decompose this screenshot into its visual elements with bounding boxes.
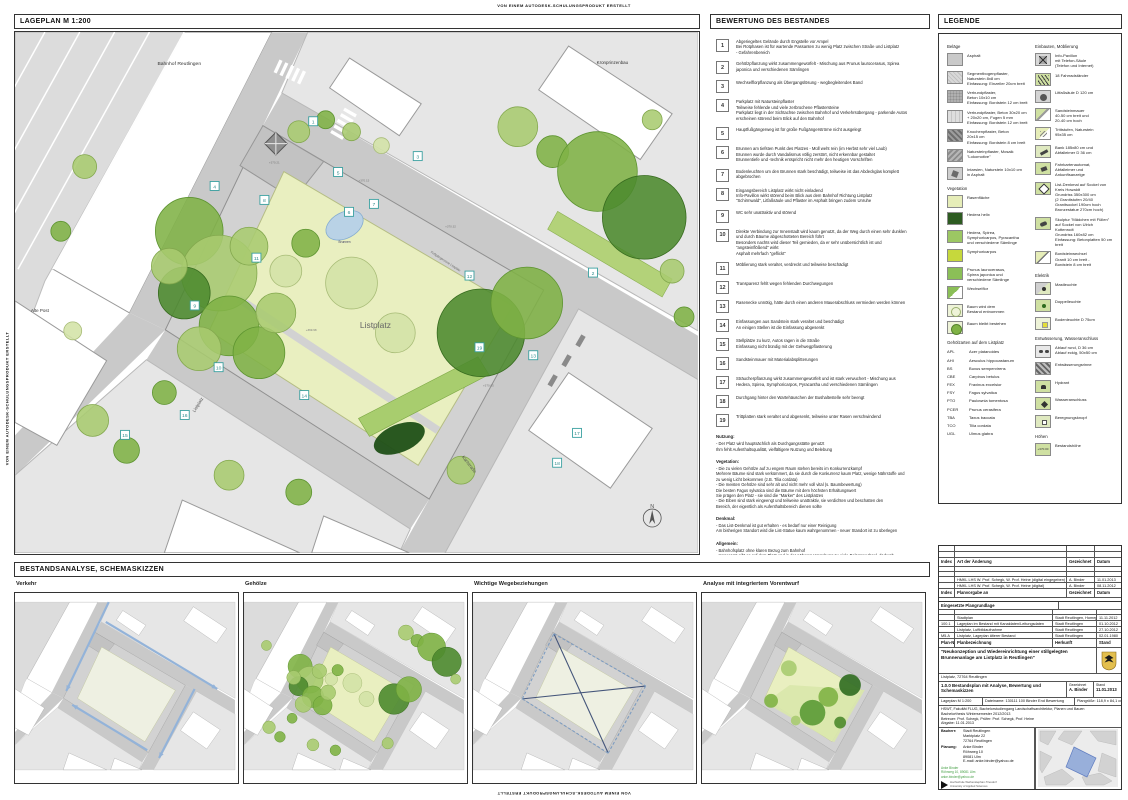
legend-entry: +370.00Bestandshöhe xyxy=(1035,443,1119,456)
titleblock-cell: 02.01.1980 xyxy=(1097,633,1121,638)
bewertung-item-number: 18 xyxy=(716,395,729,408)
legend-entry: Verbundpflaster, Beton 10x10 cm Einfassu… xyxy=(947,90,1031,105)
legend-swatch-beregnung xyxy=(1035,415,1051,428)
bewertung-item: 7Bodenleuchten um den Brunnen stark besc… xyxy=(716,169,930,182)
titleblock-cell: 27.10.2012 xyxy=(1097,627,1121,632)
legend-swatch-verbund1 xyxy=(947,90,963,103)
planvorgabe-header: IndexPlanvorgabe anGezeichnetDatum xyxy=(939,589,1121,598)
bewertung-item: 17Sträucherpflanzung wirkt zusammengewür… xyxy=(716,376,930,389)
schematic-label-wege: Wichtige Wegebeziehungen xyxy=(474,581,548,587)
tree xyxy=(642,110,662,130)
autodesk-banner-bottom: VON EINEM AUTODESK-SCHULUNGSPRODUKT ERST… xyxy=(0,791,1128,796)
legend-swatch-sympho xyxy=(947,249,963,262)
bewertung-section-line: Am bisherigen Standort wird die List-Sta… xyxy=(716,528,930,533)
titleblock-cell: Datum xyxy=(1095,589,1121,597)
schematic-label-gehoelze: Gehölze xyxy=(245,581,267,587)
legend-column-right: Einbauten, MöblierungInfo-Pavillon mit T… xyxy=(1035,38,1119,460)
titleblock-cell xyxy=(939,567,955,571)
legend-entry: Bank 185x80 cm und Abfalleimer D 36 cm xyxy=(1035,145,1119,158)
elevation-label: +370.05 xyxy=(483,384,494,388)
bewertung-item-text: Stellplätze zu kurz, Autos ragen in die … xyxy=(736,338,928,351)
legend-species-row: FSYFagus sylvatica xyxy=(947,390,1031,395)
legend-entry-label: Verbundpflaster, Beton 30x20 cm + 20x20 … xyxy=(967,110,1028,125)
tree xyxy=(64,322,82,340)
titleblock-cell xyxy=(939,583,955,588)
tree xyxy=(233,327,285,379)
legend-swatch-fahrrad xyxy=(1035,73,1051,86)
legend-entry: 18 Fahrradständer xyxy=(1035,73,1119,86)
project-title: "Neukonzeption und Wiedereinrichtung ein… xyxy=(939,648,1097,673)
legend-entry: Segmentbogenpflaster, Naturstein 8x8 cm … xyxy=(947,71,1031,86)
titleblock-cell xyxy=(1059,602,1121,609)
planner-block: Planung:Anke Binder Röhrweg 10 89081 Ulm… xyxy=(941,745,1032,764)
grundlage-footer: Plan-Nr.PlanbezeichnungHerkunftStand xyxy=(939,639,1121,648)
coat-of-arms xyxy=(1097,648,1121,673)
plan-sheet: VON EINEM AUTODESK-SCHULUNGSPRODUKT ERST… xyxy=(0,0,1128,800)
svg-text:4: 4 xyxy=(213,184,216,190)
bewertung-item: 10Direkte Verbindung zur Innenstadt wird… xyxy=(716,229,930,256)
legend-entry-label: 18 Fahrradständer xyxy=(1055,73,1088,78)
legend-entry-label: Sandsteinmauer 40-50 cm breit und 20-40 … xyxy=(1055,108,1089,123)
titleblock-cell: 01.10.2012 xyxy=(1097,621,1121,626)
bewertung-item-text: Brunnen am tiefsten Punkt des Platzes - … xyxy=(736,146,928,162)
legend-entry-label: Wechselflor xyxy=(967,286,988,291)
assessment-title: BEWERTUNG DES BESTANDES xyxy=(710,14,930,29)
bewertung-item-number: 13 xyxy=(716,300,729,313)
legend-swatch-ablauf xyxy=(1035,345,1051,358)
autodesk-banner-top: VON EINEM AUTODESK-SCHULUNGSPRODUKT ERST… xyxy=(0,3,1128,8)
project-location: Listplatz, 72764 Reutlingen xyxy=(939,674,1121,682)
titleblock-cell: Stadt Reutlingen xyxy=(1053,621,1097,626)
legend-entry-label: Rasenfläche xyxy=(967,195,990,200)
legend-swatch-hoehe: +370.00 xyxy=(1035,443,1051,456)
titleblock-cell xyxy=(1095,567,1121,571)
tree xyxy=(287,671,301,685)
species-name: Fraxinus excelsior xyxy=(969,382,1002,387)
tree xyxy=(214,460,244,490)
legend-swatch-prunus xyxy=(947,267,963,280)
university-logo: Hochschule Weihenstephan-Triesdorf Unive… xyxy=(941,781,1032,789)
client-value: Stadt Reutlingen Marktplatz 22 72764 Reu… xyxy=(963,729,992,743)
legend-species-row: CBECarpinus betulus xyxy=(947,374,1031,379)
legend-entry: Intarsien, Naturstein 10x10 cm in Asphal… xyxy=(947,167,1031,180)
tree xyxy=(451,674,461,684)
titleblock-cell xyxy=(939,615,955,620)
location-map xyxy=(1035,728,1121,790)
tree xyxy=(287,713,297,723)
legend-column-left: BelägeAsphaltSegmentbogenpflaster, Natur… xyxy=(947,38,1031,439)
legend-swatch-wechselflor xyxy=(947,286,963,299)
legend-entry: Wasseranschluss xyxy=(1035,397,1119,410)
legend-swatch-verbund2 xyxy=(947,110,963,123)
reutlingen-crest-icon xyxy=(1100,651,1118,671)
legend-entry-label: Natursteinpflaster, Mosaik "Lokomotive" xyxy=(967,149,1014,159)
legend-entry: Entwässerungsrinne xyxy=(1035,362,1119,375)
titleblock-cell: Datum xyxy=(1095,558,1121,566)
legend-entry: Rasenfläche xyxy=(947,195,1031,208)
legend-swatch-mosaik xyxy=(947,149,963,162)
svg-text:12: 12 xyxy=(467,274,473,280)
tree xyxy=(396,677,421,702)
legend-swatch-denkmal xyxy=(1035,182,1051,195)
bewertung-item-text: Rasenecke unnötig, hätte durch einen and… xyxy=(736,300,928,313)
legend-entry-label: Doppelleuchte xyxy=(1055,299,1081,304)
tree xyxy=(152,381,176,405)
plan-number-and-name: 1.0.0 Bestandsplan mit Analyse, Bewertun… xyxy=(939,682,1067,697)
tree xyxy=(256,293,296,333)
species-code: AHI xyxy=(947,358,969,363)
titleblock-cell: A. Binder xyxy=(1067,583,1095,588)
signature: Anke Binder Röhrweg 10, 89081 Ulm anke.b… xyxy=(941,766,1032,778)
bewertung-item: 14Einfassungen aus Sandstein stark veral… xyxy=(716,319,930,332)
bewertung-item-number: 10 xyxy=(716,229,729,242)
legend-species-row: FEXFraxinus excelsior xyxy=(947,382,1031,387)
svg-text:16: 16 xyxy=(182,413,188,419)
species-code: FSY xyxy=(947,390,969,395)
elevation-label: +369.98 xyxy=(306,328,317,332)
legend-species-row: APLAcer platanoides xyxy=(947,349,1031,354)
legend-entry-label: Segmentbogenpflaster, Naturstein 8x8 cm … xyxy=(967,71,1025,86)
species-name: Prunus cerasifera xyxy=(969,407,1001,412)
legend-entry-label: Verbundpflaster, Beton 10x10 cm Einfassu… xyxy=(967,90,1028,105)
bewertung-item-text: Eingangsbereich Listplatz wirkt nicht ei… xyxy=(736,188,928,204)
siteplan-title: LAGEPLAN M 1:200 xyxy=(14,14,700,29)
titleblock-cell xyxy=(1067,567,1095,571)
bewertung-item-number: 7 xyxy=(716,169,729,182)
schematic-svg-wege xyxy=(473,593,696,783)
legend-entry: Prunus laurocerasus, Spirea japonica und… xyxy=(947,267,1031,282)
legend-entry-label: Hedera helix xyxy=(967,212,990,217)
logo-text: Hochschule Weihenstephan-Triesdorf Unive… xyxy=(950,781,997,788)
legend-entry-label: Fahrkartenautomat, Abfalleimer und Ankun… xyxy=(1055,162,1090,177)
tree xyxy=(51,221,71,241)
university-text: HSWT, Fakultät FLUG, Bachelorstudiengang… xyxy=(939,706,1121,727)
tree xyxy=(326,257,378,309)
legend-entry-label: Mastleuchte xyxy=(1055,282,1077,287)
bewertung-item-text: Hauptfußgängerweg ist für große Fußgänge… xyxy=(736,127,928,140)
bewertung-section-line: Bereich, der eigentlich als Aufenthaltsb… xyxy=(716,504,930,509)
legend-entry: Fahrkartenautomat, Abfalleimer und Ankun… xyxy=(1035,162,1119,177)
legend-entry-label: Wasseranschluss xyxy=(1055,397,1087,402)
tree xyxy=(73,155,97,179)
drawn-cell: GezeichnetA. Binder xyxy=(1067,682,1094,697)
titleblock-cell: Listplatz, 72764 Reutlingen xyxy=(939,674,1121,681)
legend-entry: Wechselflor xyxy=(947,286,1031,299)
schematic-panel-analyse xyxy=(701,592,926,784)
svg-text:9: 9 xyxy=(193,304,196,310)
legend-species-row: BSBuxus sempervirens xyxy=(947,366,1031,371)
legend-entry-label: Intarsien, Naturstein 10x10 cm in Asphal… xyxy=(967,167,1022,177)
legend-entry: Trittstufen, Naturstein 95x35 cm xyxy=(1035,127,1119,140)
legend-entry-label: List-Denkmal auf Sockel von Kreis Howald… xyxy=(1055,182,1106,212)
logo-flag-icon xyxy=(941,781,948,789)
bewertung-item-text: Sträucherpflanzung wirkt zusammengewürfe… xyxy=(736,376,928,389)
legend-entry: Baum bleibt bestehen xyxy=(947,321,1031,334)
bewertung-item: 2Gehölzpflanzung wirkt zusammengewürfelt… xyxy=(716,61,930,74)
legend-swatch-wasser xyxy=(1035,397,1051,410)
legend-entry-label: Bordsteinwechsel Granit 10 cm breit - Bo… xyxy=(1055,251,1091,266)
elevation-label: +370.15 xyxy=(358,178,369,182)
tree xyxy=(343,673,362,692)
legend-entry: Knochenpflaster, Beton 20x15 cm Einfassu… xyxy=(947,129,1031,144)
svg-text:10: 10 xyxy=(216,365,222,371)
legend-swatch-boden xyxy=(1035,317,1051,330)
legend-entry: Verbundpflaster, Beton 30x20 cm + 20x20 … xyxy=(947,110,1031,125)
svg-text:6: 6 xyxy=(348,210,351,216)
legend-entry: Bordsteinwechsel Granit 10 cm breit - Bo… xyxy=(1035,251,1119,266)
assessment-marker: 9 xyxy=(190,301,199,310)
legend-swatch-treeout xyxy=(947,304,963,317)
tree xyxy=(834,717,846,729)
titleblock-cell: Herkunft xyxy=(1053,639,1097,647)
legend-swatch-segment xyxy=(947,71,963,84)
bewertung-item-text: WC sehr unattraktiv und störend xyxy=(736,210,928,223)
legend-swatch-skulptur xyxy=(1035,217,1051,230)
legend-entry: Hedera helix xyxy=(947,212,1031,225)
bewertung-item-text: Einfassungen aus Sandstein stark veralte… xyxy=(736,319,928,332)
titleblock-cell: 08.11.2012 xyxy=(1095,583,1121,588)
titleblock-cell: Index xyxy=(939,558,955,566)
species-name: Taxus baccata xyxy=(969,415,995,420)
bewertung-item-number: 4 xyxy=(716,99,729,112)
tree xyxy=(818,687,838,707)
assessment-marker: 2 xyxy=(588,268,597,277)
titleblock-cell: 11.11.2012 xyxy=(1097,615,1121,620)
legend-entry: Asphalt xyxy=(947,53,1031,66)
tree xyxy=(330,745,341,756)
cell-value: 11.01.2013 xyxy=(1096,687,1119,692)
legend-entry-label: Asphalt xyxy=(967,53,981,58)
bewertung-item-number: 8 xyxy=(716,188,729,201)
legend-group-heading: Vegetation xyxy=(947,186,1031,191)
legend-entry-label: Trittstufen, Naturstein 95x35 cm xyxy=(1055,127,1094,137)
legend-swatch-bordstein xyxy=(1035,251,1051,264)
assessment-marker: 6 xyxy=(345,207,354,216)
legend-entry: Bodenleuchte D 75cm xyxy=(1035,317,1119,330)
legend-title: LEGENDE xyxy=(938,14,1122,29)
titleblock-cell: Planbezeichnung xyxy=(955,639,1053,647)
bewertung-item: 3Wechselflorpflanzung als Übergangslösun… xyxy=(716,80,930,93)
contact-block: Bauherr:Stadt Reutlingen Marktplatz 22 7… xyxy=(939,728,1035,790)
legend-swatch-mauer xyxy=(1035,108,1051,121)
legend-entry-label: Baum bleibt bestehen xyxy=(967,321,1006,326)
bewertung-item-text: Wechselflorpflanzung als Übergangslösung… xyxy=(736,80,928,93)
titleblock-cell xyxy=(1067,552,1095,557)
svg-text:15: 15 xyxy=(122,433,128,439)
titleblock-cell: Lageplan im Bestand mit Kanaldaten/Leitu… xyxy=(955,621,1053,626)
assessment-marker: 12 xyxy=(465,271,474,280)
titleblock-cell: Dateiname: 130111 100 Binder End Bewertu… xyxy=(983,698,1075,705)
legend-entry: Hedera, Spirea, Symphoricarpos, Pyracant… xyxy=(947,230,1031,245)
assessment-marker: 4 xyxy=(210,181,219,190)
titleblock-cell xyxy=(1067,572,1095,576)
legend-swatch-asphalt xyxy=(947,53,963,66)
client-label: Bauherr: xyxy=(941,729,963,743)
titleblock-cell xyxy=(955,567,1067,571)
assessment-marker: 10 xyxy=(214,363,223,372)
legend-entry-label: Ablauf rund, D 36 cm Ablauf eckig, 50x50… xyxy=(1055,345,1097,355)
legend-group-heading: Beläge xyxy=(947,44,1031,49)
bewertung-item-number: 9 xyxy=(716,210,729,223)
legend-group-heading: Höhen xyxy=(1035,434,1119,439)
tree xyxy=(263,721,276,734)
bewertung-item: 11Möblierung stark veraltet, verdreckt u… xyxy=(716,262,930,275)
titleblock-cell xyxy=(955,546,1067,551)
titleblock-cell: Plangröße: 118,9 x 84,1 cm xyxy=(1075,698,1121,705)
bewertung-section-heading: Vegetation: xyxy=(716,459,930,464)
plan-label-brunnen: Brunnen xyxy=(339,240,351,244)
bewertung-item: 4Parkplatz mit Natursteinpflaster Teilwe… xyxy=(716,99,930,121)
bewertung-item: 15Stellplätze zu kurz, Autos ragen in di… xyxy=(716,338,930,351)
tree xyxy=(359,691,374,706)
bewertung-item-number: 3 xyxy=(716,80,729,93)
legend-entry: Ablauf rund, D 36 cm Ablauf eckig, 50x50… xyxy=(1035,345,1119,358)
bewertung-item: 9WC sehr unattraktiv und störend xyxy=(716,210,930,223)
legend-group-heading: Elektrik xyxy=(1035,273,1119,278)
legend-entry-label: Bodenleuchte D 75cm xyxy=(1055,317,1095,322)
legend-entry-label: Entwässerungsrinne xyxy=(1055,362,1092,367)
titleblock-cell: Stadt Reutlingen xyxy=(1053,627,1097,632)
assessment-marker: 7 xyxy=(369,199,378,208)
tree xyxy=(674,307,694,327)
titleblock-cell xyxy=(1053,610,1097,614)
university-row: HSWT, Fakultät FLUG, Bachelorstudiengang… xyxy=(939,706,1121,728)
titleblock-cell: A. Binder xyxy=(1067,577,1095,582)
legend-entry-label: Hedera, Spirea, Symphoricarpos, Pyracant… xyxy=(967,230,1019,245)
legend-entry: List-Denkmal auf Sockel von Kreis Howald… xyxy=(1035,182,1119,212)
titleblock-cell xyxy=(955,572,1067,576)
titleblock-cell xyxy=(1095,572,1121,576)
bewertung-item-number: 11 xyxy=(716,262,729,275)
bewertung-item-number: 6 xyxy=(716,146,729,159)
legend-entry: Symphoricarpos xyxy=(947,249,1031,262)
bewertung-item: 8Eingangsbereich Listplatz wirkt nicht e… xyxy=(716,188,930,204)
tree xyxy=(292,229,320,257)
svg-text:17: 17 xyxy=(574,431,580,437)
bewertung-item: 1Abgeriegeltes Gelände durch Engstelle v… xyxy=(716,39,930,55)
client-block: Bauherr:Stadt Reutlingen Marktplatz 22 7… xyxy=(941,729,1032,743)
titleblock-cell: Stadt Reutlingen xyxy=(1053,633,1097,638)
legend-entry: Mastleuchte xyxy=(1035,282,1119,295)
tree xyxy=(343,123,361,141)
assessment-marker: 5 xyxy=(334,168,343,177)
titleblock-cell: 11.01.2013 xyxy=(1095,577,1121,582)
tree xyxy=(602,176,686,260)
legend-species-row: PCERPrunus cerasifera xyxy=(947,407,1031,412)
bewertung-item-number: 2 xyxy=(716,61,729,74)
tree xyxy=(295,696,311,712)
titleblock-cell: HMKL LHS W. Prof. Schegk, W. Prof. Heine… xyxy=(955,577,1067,582)
assessment-marker: 18 xyxy=(553,458,562,467)
tree xyxy=(114,437,140,463)
legend-swatch-intarsien xyxy=(947,167,963,180)
legend-entry-label: Baum wird dem Bestand entnommen xyxy=(967,304,1004,314)
plan-label-alte_post: Alte Post xyxy=(31,308,50,313)
bewertung-item-text: Bodenleuchten um den Brunnen stark besch… xyxy=(736,169,928,182)
titleblock-cell: Stand xyxy=(1097,639,1121,647)
schematic-svg-analyse xyxy=(702,593,925,783)
contact-row: Bauherr:Stadt Reutlingen Marktplatz 22 7… xyxy=(939,728,1121,790)
assessment-marker: 11 xyxy=(252,253,261,262)
svg-text:18: 18 xyxy=(554,461,560,467)
bewertung-item-text: Möblierung stark veraltet, verdreckt und… xyxy=(736,262,928,275)
titleblock-cell xyxy=(1097,610,1121,614)
titleblock-cell xyxy=(1095,546,1121,551)
legend-swatch-tritt xyxy=(1035,127,1051,140)
bewertung-item-number: 1 xyxy=(716,39,729,52)
legend-species-row: AHIAesculus hippocastanum xyxy=(947,358,1031,363)
bewertung-item: 13Rasenecke unnötig, hätte durch einen a… xyxy=(716,300,930,313)
legend-entry-label: Beregnungsknopf xyxy=(1055,415,1087,420)
tree xyxy=(151,248,187,284)
siteplan-drawing: 12345678910111213141516171819+370.15+370… xyxy=(14,31,700,555)
bewertung-item: 16Sandsteinmauer mit Materialabsplitteru… xyxy=(716,357,930,370)
tree xyxy=(317,111,335,129)
svg-text:5: 5 xyxy=(337,170,340,176)
bewertung-item-text: Gehölzpflanzung wirkt zusammengewürfelt … xyxy=(736,61,928,74)
svg-text:7: 7 xyxy=(373,202,376,208)
bewertung-section-heading: Allgemein: xyxy=(716,541,930,546)
bewertung-item: 12Transparenz fehlt wegen fehlenden Durc… xyxy=(716,281,930,294)
tree xyxy=(307,739,319,751)
titleblock-cell: Stadtplan xyxy=(955,615,1053,620)
legend-swatch-mast xyxy=(1035,282,1051,295)
bewertung-item-number: 17 xyxy=(716,376,729,389)
species-name: Tilia cordata xyxy=(969,423,991,428)
species-code: PTO xyxy=(947,398,969,403)
legend-entry: Baum wird dem Bestand entnommen xyxy=(947,304,1031,317)
legend-entry: Skulptur "Mädchen mit Füllen" auf Sockel… xyxy=(1035,217,1119,247)
tree xyxy=(275,731,286,742)
plan-label-kronprinzenbau: Kronprinzenbau xyxy=(597,60,629,65)
bewertung-item-number: 5 xyxy=(716,127,729,140)
bewertung-section-line: Ihm fehlt Aufenthaltsqualität, vielfälti… xyxy=(716,447,930,452)
legend-species-row: UGLUlmus glabra xyxy=(947,431,1031,436)
assessment-marker: 16 xyxy=(180,410,189,419)
schematic-panel-wege xyxy=(472,592,697,784)
titleblock-cell xyxy=(1095,552,1121,557)
species-name: Ulmus glabra xyxy=(969,431,993,436)
schematic-label-verkehr: Verkehr xyxy=(16,581,37,587)
tree xyxy=(432,647,461,676)
tree xyxy=(764,694,778,708)
legend-swatch-hedera xyxy=(947,212,963,225)
location-map-svg xyxy=(1038,729,1118,787)
species-code: PCER xyxy=(947,407,969,412)
legend-species-row: PTOPaulownia tomentosa xyxy=(947,398,1031,403)
legend-entry-label: Skulptur "Mädchen mit Füllen" auf Sockel… xyxy=(1055,217,1112,247)
svg-text:N: N xyxy=(650,504,654,510)
species-code: CBE xyxy=(947,374,969,379)
tree xyxy=(660,259,684,283)
titleblock-cell xyxy=(939,572,955,576)
titleblock-cell: Index xyxy=(939,589,955,597)
tree xyxy=(332,664,343,675)
schematic-label-analyse: Analyse mit integriertem Vorentwurf xyxy=(703,581,799,587)
legend-swatch-doppel xyxy=(1035,299,1051,312)
bewertung-item: 19Trittplatten stark veraltet und abgese… xyxy=(716,414,930,427)
bewertung-item-text: Transparenz fehlt wegen fehlenden Durchw… xyxy=(736,281,928,294)
tree xyxy=(288,121,310,143)
elevation-label: +370.21 xyxy=(269,161,280,165)
tree xyxy=(373,138,389,154)
bewertung-item-number: 12 xyxy=(716,281,729,294)
legend-entry-label: Litfaßsäule D 120 cm xyxy=(1055,90,1093,95)
assessment-marker: 14 xyxy=(300,391,309,400)
legend-species-row: TCOTilia cordata xyxy=(947,423,1031,428)
bewertung-section-heading: Nutzung: xyxy=(716,434,930,439)
species-code: BS xyxy=(947,366,969,371)
